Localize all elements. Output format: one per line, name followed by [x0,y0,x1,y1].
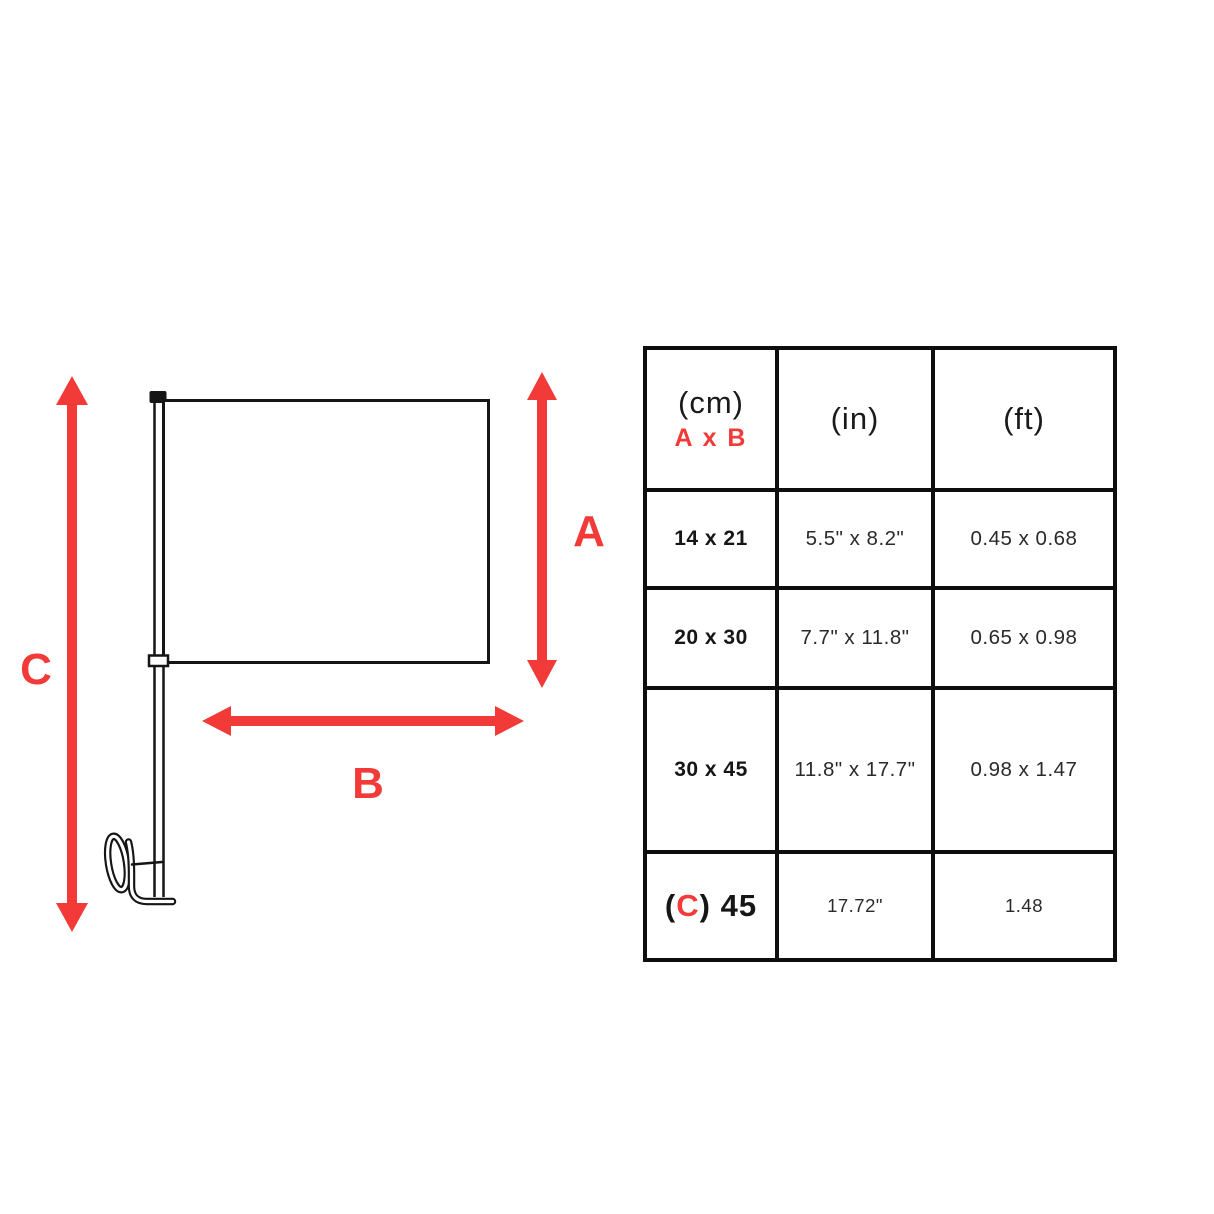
table-row-cm: 30 x 45 [647,690,775,850]
arrow-right-icon [495,706,524,736]
dimension-a-arrow [527,372,557,688]
table-header-ft: (ft) [935,350,1113,488]
dimension-b-arrow [202,706,524,736]
clip-base-outline [129,842,173,902]
table-row-cm: 20 x 30 [647,590,775,686]
flag-panel [164,401,489,663]
table-row-ft: 0.98 x 1.47 [935,690,1113,850]
c-letter: C [676,888,699,923]
header-axb: A x B [675,424,748,453]
arrow-left-icon [202,706,231,736]
table-row-c-cm: (C) 45 [647,854,775,958]
c-row-label: (C) 45 [665,888,757,924]
clip-channel-edge [132,862,162,865]
table-row-ft: 0.65 x 0.98 [935,590,1113,686]
table-row-ft: 0.45 x 0.68 [935,492,1113,586]
table-row-c-ft: 1.48 [935,854,1113,958]
table-row-in: 11.8" x 17.7" [779,690,931,850]
dimension-label-c: C [11,648,61,692]
arrow-up-icon [527,372,557,400]
table-header-cm: (cm) A x B [647,350,775,488]
dimension-label-a: A [564,510,614,554]
arrow-up-icon [56,376,88,405]
table-header-in: (in) [779,350,931,488]
table-row-c-in: 17.72" [779,854,931,958]
arrow-down-icon [527,660,557,688]
pole-collar [149,656,168,667]
arrow-down-icon [56,903,88,932]
car-flag-size-chart: C A B (cm) A x B (in) (ft) 14 x 21 5.5" … [0,0,1214,1214]
size-table: (cm) A x B (in) (ft) 14 x 21 5.5" x 8.2"… [643,346,1117,962]
table-row-cm: 14 x 21 [647,492,775,586]
table-row-in: 7.7" x 11.8" [779,590,931,686]
header-unit-cm: (cm) [678,385,744,421]
table-row-in: 5.5" x 8.2" [779,492,931,586]
dimension-label-b: B [343,762,393,806]
